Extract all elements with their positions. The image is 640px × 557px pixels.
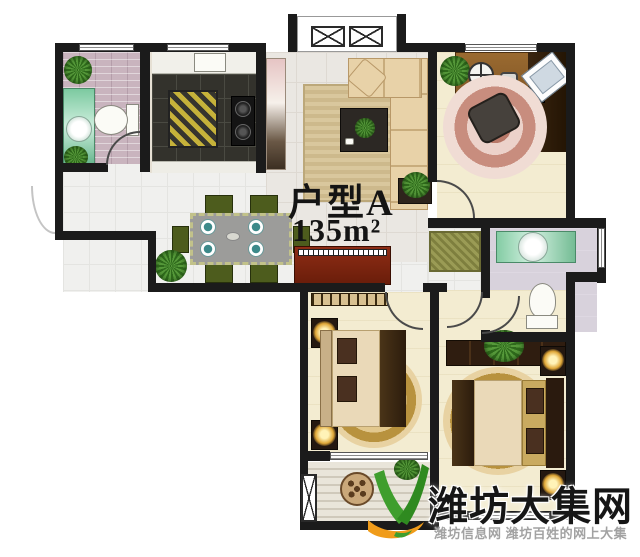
toilet-tank (526, 315, 558, 329)
window-symbol (598, 228, 605, 268)
dining-chair (250, 195, 278, 214)
wall-segment (566, 272, 575, 520)
kitchen-counter-low (152, 161, 256, 173)
wall-segment (300, 521, 439, 530)
wall-segment (288, 14, 297, 52)
plant-icon (394, 458, 420, 480)
bathroom2-sink (518, 232, 548, 262)
dining-chair (205, 264, 233, 283)
burner-icon (235, 101, 251, 117)
plant-icon (402, 172, 430, 198)
wall-segment (430, 283, 439, 520)
wall-segment (63, 163, 108, 172)
window-symbol (478, 512, 550, 519)
wall-segment (428, 218, 606, 228)
wall-segment (566, 43, 575, 228)
window-symbol (301, 474, 317, 522)
lamp-icon (542, 349, 564, 371)
wall-segment (300, 283, 385, 292)
pillow (526, 388, 544, 414)
pillow (526, 428, 544, 454)
dresser (311, 293, 388, 306)
bed2 (474, 380, 522, 466)
window-symbol (311, 26, 345, 47)
pillow (337, 338, 357, 364)
wall-segment (481, 228, 490, 298)
pillow (337, 376, 357, 402)
hall-mat (429, 231, 481, 272)
balcony-table (340, 472, 374, 506)
window-symbol (465, 44, 537, 51)
wall-segment (148, 283, 308, 292)
toilet-bowl (94, 105, 128, 135)
plant-icon (155, 250, 187, 282)
wall-segment (55, 43, 63, 240)
wall-segment (481, 332, 575, 342)
bathroom-sink (66, 116, 92, 142)
plate-icon (248, 241, 264, 257)
window-symbol (330, 452, 428, 460)
kitchen-mat (168, 90, 218, 148)
plant-icon (64, 56, 92, 84)
wall-segment (300, 283, 308, 463)
plant-icon (440, 56, 470, 86)
window-symbol (79, 44, 134, 51)
wall-segment (140, 52, 150, 172)
plant-icon (355, 118, 375, 138)
plan-area-label: 135m² (292, 212, 381, 249)
bed2-runner (452, 380, 474, 466)
bed1-headboard (320, 330, 332, 427)
plate-icon (248, 219, 264, 235)
dining-chair (250, 264, 278, 283)
wall-segment (397, 43, 465, 52)
dining-chair (172, 226, 189, 253)
kitchen-sink (194, 53, 226, 72)
window-symbol (167, 44, 229, 51)
window-symbol (349, 26, 383, 47)
entry-door-arc (31, 186, 55, 234)
bed1-runner (380, 330, 406, 427)
lamp-icon (542, 473, 564, 495)
wall-segment (55, 231, 156, 240)
piano-keys (298, 249, 387, 256)
tea-cup (345, 138, 354, 145)
plate-icon (200, 241, 216, 257)
dining-chair (205, 195, 233, 214)
floor-plan-canvas: 户型A 135m² 潍坊大集网 潍坊信息网 潍坊百姓的网上大集 (0, 0, 640, 557)
serving-dish (226, 232, 240, 241)
wall-segment (256, 43, 266, 173)
tv-cabinet (266, 58, 286, 170)
watermark-tagline: 潍坊信息网 潍坊百姓的网上大集 (434, 523, 627, 542)
plate-icon (200, 219, 216, 235)
toilet-bowl (529, 283, 556, 318)
wall-segment (428, 52, 437, 182)
wall-segment (300, 451, 330, 461)
burner-icon (235, 124, 251, 140)
bed2-headboard (546, 378, 564, 468)
